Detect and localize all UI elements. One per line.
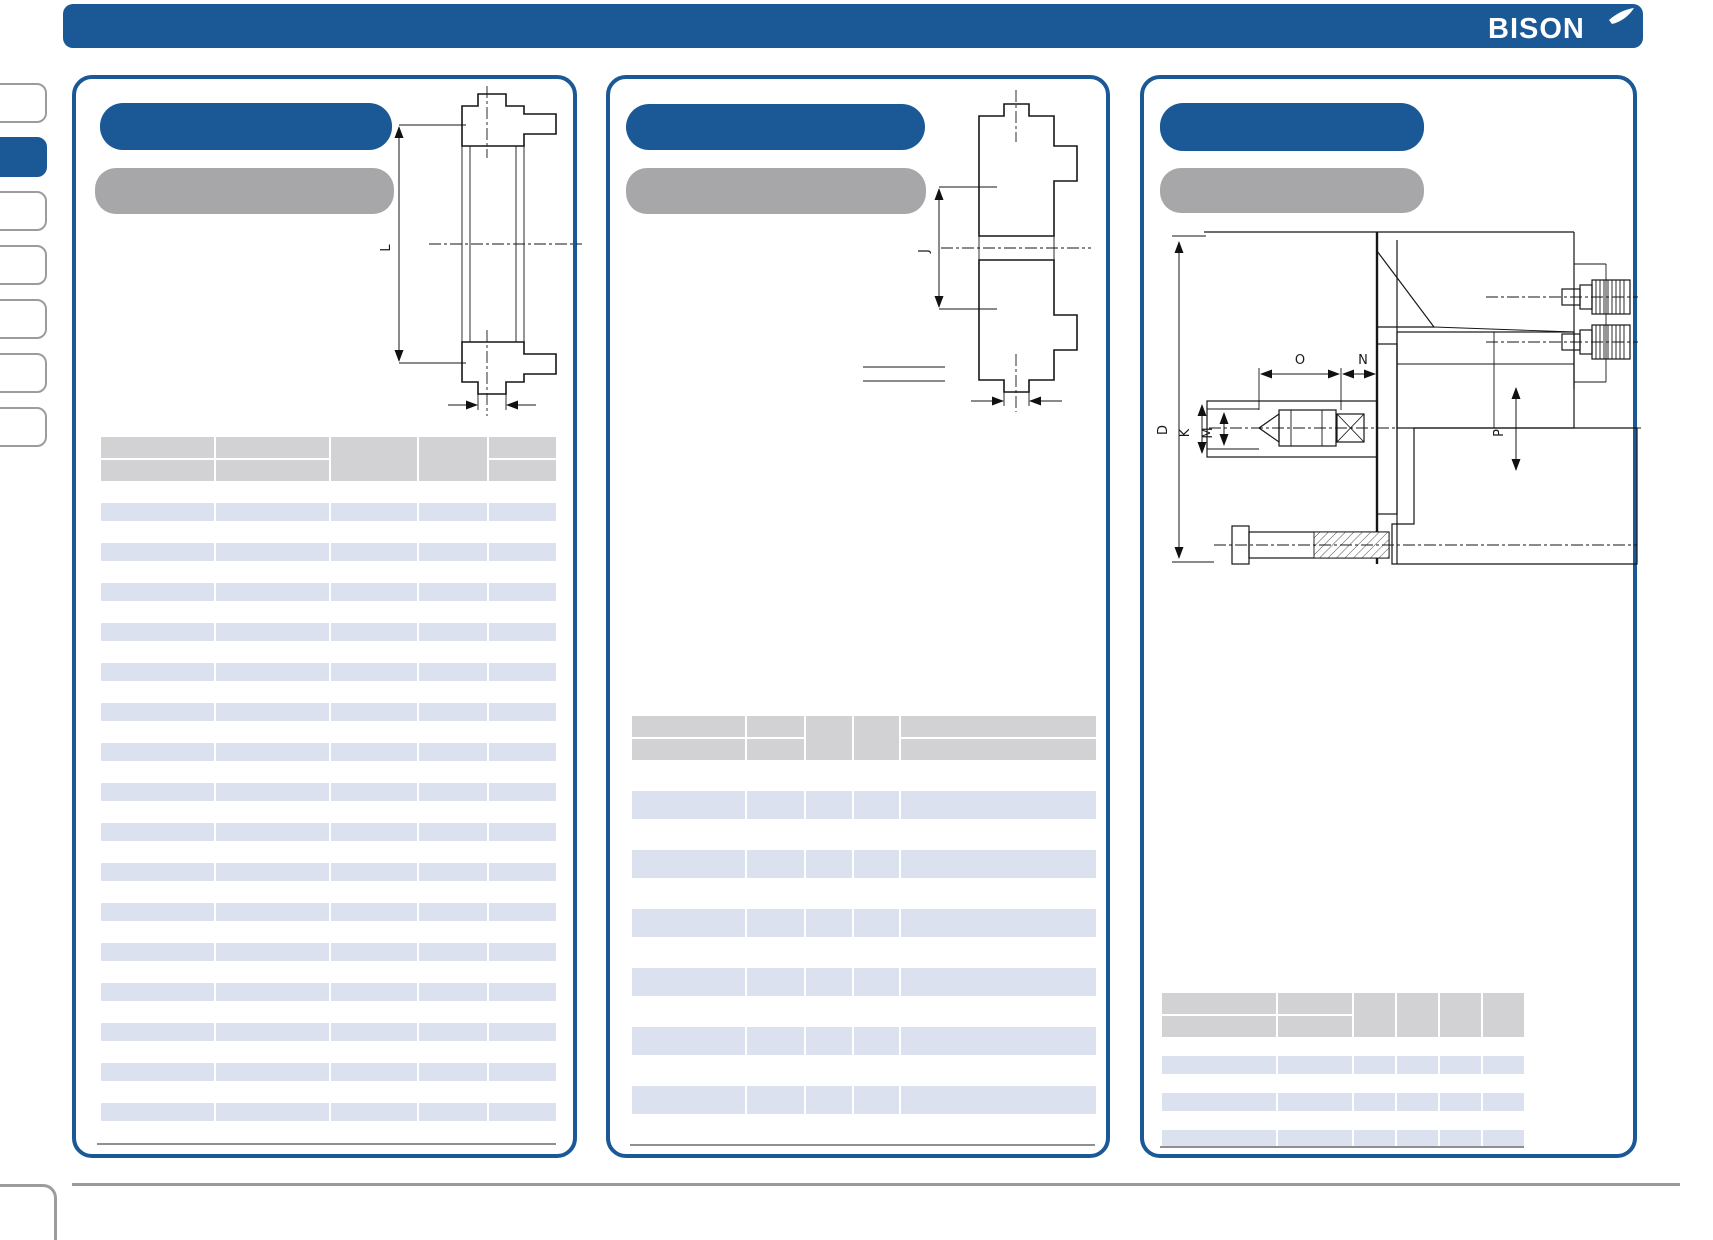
dim-label-N: N: [1358, 353, 1368, 368]
table-cell: [854, 850, 899, 878]
header-cell: [489, 437, 556, 458]
table-cell: [489, 943, 556, 961]
table-cell: [101, 1103, 214, 1121]
sidebar-tab[interactable]: [0, 353, 47, 393]
table-row: [632, 1027, 1096, 1055]
table-cell: [216, 903, 329, 921]
table-cell: [331, 623, 417, 641]
technical-drawing-assembly: D K M O N: [1154, 214, 1644, 574]
table-cell: [419, 743, 487, 761]
table-cell: [419, 503, 487, 521]
table-cell: [1278, 1093, 1352, 1111]
table-cell: [331, 823, 417, 841]
table-cell: [101, 583, 214, 601]
dim-label-K: K: [1178, 428, 1193, 437]
table-cell: [632, 909, 745, 937]
table-cell: [854, 791, 899, 819]
table-cell: [419, 823, 487, 841]
table-cell: [331, 663, 417, 681]
header-cell: [901, 739, 1096, 760]
table-cell: [854, 1086, 899, 1114]
table-cell: [632, 1086, 745, 1114]
table-row: [632, 791, 1096, 819]
table-cell: [1162, 1056, 1276, 1074]
table-row: [101, 1023, 556, 1041]
table-cell: [419, 1063, 487, 1081]
dim-label-O: O: [1295, 353, 1305, 368]
header-cell: [331, 437, 417, 481]
table-cell: [632, 850, 745, 878]
table-cell: [1354, 1056, 1395, 1074]
table-cell: [806, 1027, 852, 1055]
header-cell: [101, 437, 214, 458]
table-cell: [216, 1023, 329, 1041]
table-cell: [216, 703, 329, 721]
table-body: [1162, 1056, 1524, 1148]
table-cell: [901, 909, 1096, 937]
table-cell: [419, 1103, 487, 1121]
table-cell: [331, 1023, 417, 1041]
table-cell: [747, 968, 804, 996]
data-table: [101, 437, 556, 1143]
table-cell: [1162, 1093, 1276, 1111]
header-cell: [1440, 993, 1481, 1037]
table-cell: [331, 703, 417, 721]
table-cell: [489, 583, 556, 601]
panel-subtitle-bar: [1160, 168, 1424, 213]
panel-bottom-rule: [630, 1144, 1095, 1146]
table-row: [632, 968, 1096, 996]
logo-right-horn-icon: [1609, 8, 1634, 24]
table-row: [1162, 1093, 1524, 1111]
table-cell: [419, 1023, 487, 1041]
table-cell: [419, 863, 487, 881]
technical-drawing-backplate: L: [374, 86, 584, 416]
table-cell: [216, 863, 329, 881]
cap-screw-icon: [1486, 280, 1638, 314]
table-cell: [216, 1103, 329, 1121]
table-cell: [747, 909, 804, 937]
header-cell: [854, 716, 899, 760]
panel-title-bar: [100, 103, 392, 150]
table-cell: [489, 1063, 556, 1081]
header-cell: [747, 739, 804, 760]
table-row: [101, 1103, 556, 1121]
table-row: [101, 863, 556, 881]
table-row: [632, 1086, 1096, 1114]
table-cell: [101, 543, 214, 561]
table-row: [101, 703, 556, 721]
dim-label-J: J: [917, 249, 932, 254]
table-row: [101, 1063, 556, 1081]
table-cell: [632, 1027, 745, 1055]
table-cell: [216, 943, 329, 961]
catalog-page: BISON: [0, 0, 1713, 1240]
header-cell: [216, 460, 329, 481]
sidebar-tab[interactable]: [0, 299, 47, 339]
header-cell: [101, 460, 214, 481]
table-cell: [101, 983, 214, 1001]
table-row: [101, 983, 556, 1001]
table-row: [101, 583, 556, 601]
table-cell: [331, 1103, 417, 1121]
table-cell: [101, 663, 214, 681]
panel-bottom-rule: [97, 1143, 556, 1145]
table-cell: [1354, 1093, 1395, 1111]
table-row: [101, 623, 556, 641]
table-header: [1162, 993, 1524, 1037]
table-cell: [489, 703, 556, 721]
table-cell: [489, 903, 556, 921]
table-cell: [216, 743, 329, 761]
table-cell: [489, 983, 556, 1001]
header-cell: [632, 739, 745, 760]
table-cell: [489, 623, 556, 641]
table-cell: [854, 909, 899, 937]
table-cell: [331, 903, 417, 921]
table-cell: [101, 503, 214, 521]
technical-drawing-backplate: J: [849, 86, 1094, 416]
table-row: [101, 823, 556, 841]
dim-label-M: M: [1201, 427, 1216, 438]
panel-bottom-rule: [1160, 1146, 1524, 1148]
table-cell: [747, 850, 804, 878]
table-cell: [419, 783, 487, 801]
table-cell: [216, 623, 329, 641]
table-cell: [101, 1063, 214, 1081]
table-cell: [806, 850, 852, 878]
table-cell: [419, 983, 487, 1001]
bottom-left-tab[interactable]: [0, 1184, 57, 1240]
table-cell: [489, 503, 556, 521]
table-cell: [747, 791, 804, 819]
table-row: [101, 543, 556, 561]
table-cell: [1397, 1056, 1438, 1074]
table-cell: [331, 543, 417, 561]
data-table: [1162, 993, 1524, 1167]
table-cell: [331, 583, 417, 601]
table-row: [101, 743, 556, 761]
table-cell: [216, 783, 329, 801]
header-cell: [1278, 1016, 1352, 1037]
header-cell: [1162, 1016, 1276, 1037]
table-cell: [901, 1027, 1096, 1055]
table-cell: [1440, 1093, 1481, 1111]
table-cell: [489, 743, 556, 761]
table-row: [1162, 1056, 1524, 1074]
table-cell: [101, 743, 214, 761]
table-cell: [806, 909, 852, 937]
table-cell: [489, 1103, 556, 1121]
table-cell: [747, 1086, 804, 1114]
table-cell: [1440, 1056, 1481, 1074]
table-row: [101, 783, 556, 801]
table-cell: [216, 823, 329, 841]
table-row: [101, 903, 556, 921]
table-cell: [331, 1063, 417, 1081]
table-cell: [806, 968, 852, 996]
panel-backplate-type-1: L: [72, 75, 577, 1158]
table-cell: [331, 943, 417, 961]
table-cell: [1483, 1093, 1524, 1111]
table-cell: [101, 903, 214, 921]
dim-label-D: D: [1156, 425, 1171, 435]
sidebar-tab[interactable]: [0, 83, 47, 123]
header-cell: [216, 437, 329, 458]
table-cell: [419, 903, 487, 921]
header-cell: [419, 437, 487, 481]
table-cell: [806, 1086, 852, 1114]
table-cell: [854, 1027, 899, 1055]
table-cell: [901, 968, 1096, 996]
header-cell: [1483, 993, 1524, 1037]
table-body: [632, 791, 1096, 1114]
table-cell: [854, 968, 899, 996]
header-cell: [806, 716, 852, 760]
table-cell: [632, 791, 745, 819]
header-cell: [1162, 993, 1276, 1014]
panel-title-bar: [1160, 103, 1424, 151]
panel-chuck-assembly: D K M O N: [1140, 75, 1637, 1158]
table-cell: [419, 703, 487, 721]
table-cell: [489, 1023, 556, 1041]
table-row: [101, 943, 556, 961]
table-cell: [419, 543, 487, 561]
table-cell: [101, 703, 214, 721]
header-cell: [1278, 993, 1352, 1014]
top-header-bar: BISON: [63, 4, 1643, 48]
table-cell: [901, 850, 1096, 878]
table-cell: [632, 968, 745, 996]
table-row: [101, 663, 556, 681]
table-cell: [216, 543, 329, 561]
table-cell: [101, 863, 214, 881]
table-cell: [331, 783, 417, 801]
bison-logo: BISON: [1485, 7, 1635, 45]
table-cell: [331, 983, 417, 1001]
header-cell: [632, 716, 745, 737]
dim-label-P: P: [1492, 429, 1507, 437]
logo-text: BISON: [1488, 13, 1585, 45]
table-cell: [1278, 1056, 1352, 1074]
header-cell: [747, 716, 804, 737]
data-table: [632, 716, 1096, 1145]
table-cell: [101, 783, 214, 801]
table-header: [632, 716, 1096, 760]
header-cell: [1354, 993, 1395, 1037]
sidebar-tab[interactable]: [0, 191, 47, 231]
header-cell: [489, 460, 556, 481]
table-cell: [101, 943, 214, 961]
table-cell: [419, 623, 487, 641]
table-cell: [331, 743, 417, 761]
sidebar-tab[interactable]: [0, 245, 47, 285]
table-cell: [489, 543, 556, 561]
table-cell: [216, 1063, 329, 1081]
table-cell: [216, 983, 329, 1001]
header-cell: [901, 716, 1096, 737]
table-cell: [489, 863, 556, 881]
table-cell: [216, 583, 329, 601]
table-cell: [216, 663, 329, 681]
table-cell: [216, 503, 329, 521]
table-cell: [331, 863, 417, 881]
sidebar-tab[interactable]: [0, 407, 47, 447]
table-cell: [806, 791, 852, 819]
table-cell: [101, 823, 214, 841]
panel-subtitle-bar: [95, 168, 394, 214]
table-cell: [101, 623, 214, 641]
header-cell: [1397, 993, 1438, 1037]
table-row: [632, 850, 1096, 878]
table-cell: [331, 503, 417, 521]
table-cell: [901, 1086, 1096, 1114]
table-cell: [489, 663, 556, 681]
table-cell: [747, 1027, 804, 1055]
table-cell: [419, 663, 487, 681]
table-header: [101, 437, 556, 481]
table-row: [632, 909, 1096, 937]
table-cell: [419, 583, 487, 601]
table-cell: [901, 791, 1096, 819]
table-cell: [489, 783, 556, 801]
table-cell: [1397, 1093, 1438, 1111]
table-cell: [489, 823, 556, 841]
footer-divider: [72, 1183, 1680, 1186]
dim-label-L: L: [379, 244, 394, 252]
table-row: [101, 503, 556, 521]
table-cell: [419, 943, 487, 961]
table-body: [101, 503, 556, 1121]
sidebar-tab-active[interactable]: [0, 137, 47, 177]
table-cell: [1483, 1056, 1524, 1074]
panel-backplate-type-2: J: [606, 75, 1110, 1158]
table-cell: [101, 1023, 214, 1041]
